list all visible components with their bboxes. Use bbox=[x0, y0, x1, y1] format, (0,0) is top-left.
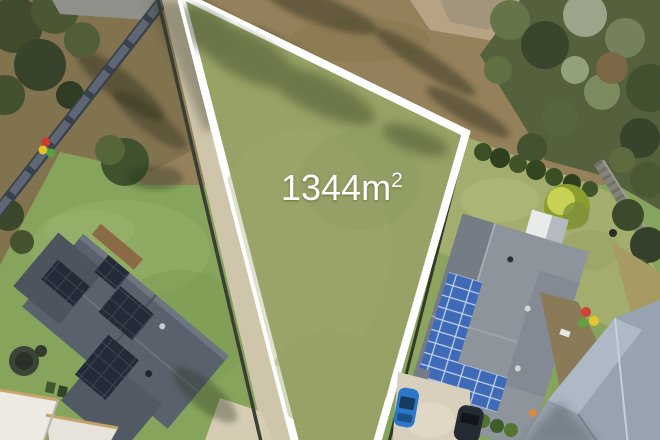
area-label: 1344m2 bbox=[281, 167, 403, 208]
aerial-photo: 1344m2 bbox=[0, 0, 660, 440]
dog bbox=[609, 229, 617, 237]
yard-item-orange bbox=[529, 409, 537, 417]
listing-photo: 1344m2 bbox=[0, 0, 660, 440]
